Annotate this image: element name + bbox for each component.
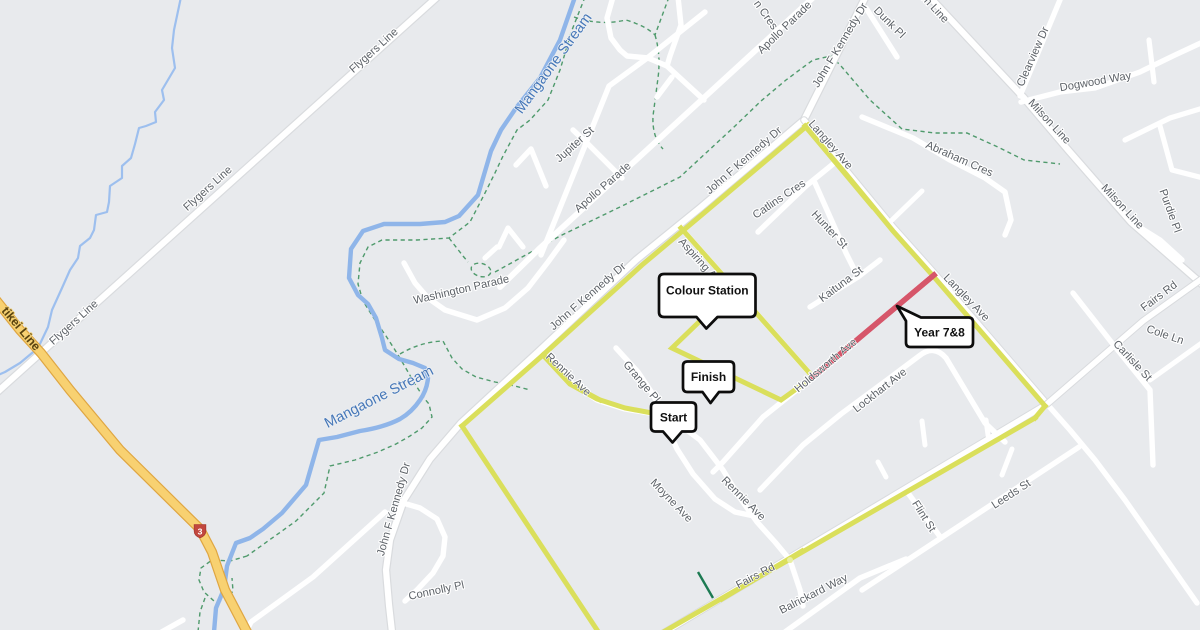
svg-text:Start: Start — [660, 411, 687, 425]
svg-text:Finish: Finish — [691, 370, 726, 384]
svg-text:Colour Station: Colour Station — [666, 284, 749, 298]
svg-text:3: 3 — [198, 527, 203, 537]
svg-text:Year 7&8: Year 7&8 — [914, 326, 965, 340]
